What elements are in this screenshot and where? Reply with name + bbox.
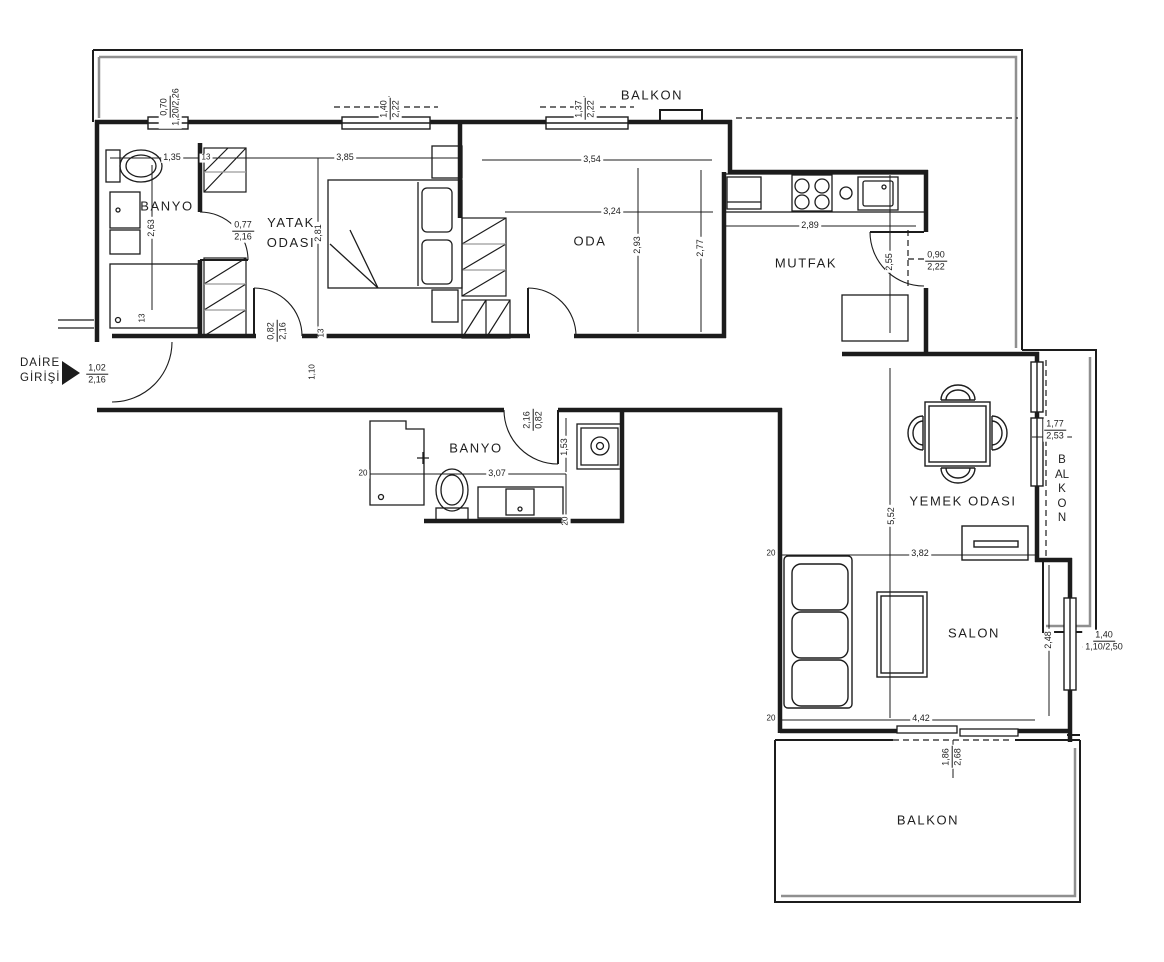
dim-oda-height-1: 2,93 bbox=[633, 234, 643, 256]
yemek-furniture bbox=[908, 385, 1028, 560]
yemek-balkon-door-dim: 1,77 2,53 bbox=[1043, 419, 1067, 442]
room-label-banyo-1: BANYO bbox=[140, 199, 194, 214]
dim-wall-20-a: 20 bbox=[357, 470, 370, 479]
kitchen-sink bbox=[858, 177, 898, 210]
dim-banyo2-width: 3,07 bbox=[486, 469, 508, 479]
dim-mutfak-width: 2,89 bbox=[799, 221, 821, 231]
salon-window-dim: 1,40 1,10/2,50 bbox=[1082, 630, 1126, 653]
dim-value: 2,16 bbox=[232, 232, 254, 243]
dim-salon-height: 2,48 bbox=[1044, 629, 1054, 651]
room-label-balkon-bottom: BALKON bbox=[897, 813, 959, 828]
floor-plan: BALKON BANYO YATAK ODASI ODA MUTFAK BANY… bbox=[0, 0, 1164, 962]
banyo1-window-dim: 0,70 1,20/2,26 bbox=[159, 85, 182, 129]
bed bbox=[328, 180, 462, 288]
vanity bbox=[478, 487, 563, 518]
yatak-window-dim: 1,40 2,22 bbox=[379, 97, 402, 121]
room-label-salon: SALON bbox=[948, 626, 1000, 641]
dim-yatak-width: 3,85 bbox=[334, 153, 356, 163]
dim-wall-20-d: 20 bbox=[765, 715, 778, 724]
chair-right bbox=[992, 416, 1007, 450]
toilet-2 bbox=[436, 469, 468, 522]
room-label-balkon-right: BALKON bbox=[1055, 453, 1070, 526]
shower bbox=[577, 424, 622, 469]
dim-wall-20-c: 20 bbox=[765, 550, 778, 559]
sofa bbox=[784, 556, 852, 708]
dim-value: 0,70 bbox=[159, 96, 171, 118]
dim-wall-13-left: 13 bbox=[139, 312, 148, 325]
dim-wall-13-mid: 13 bbox=[318, 327, 327, 340]
dim-banyo1-height: 2,63 bbox=[147, 217, 157, 239]
dining-table bbox=[925, 402, 990, 466]
yemek-balkon-window-2 bbox=[1031, 418, 1043, 486]
dim-value: 2,22 bbox=[586, 98, 597, 120]
nightstand-top bbox=[432, 146, 462, 178]
room-label-mutfak: MUTFAK bbox=[775, 256, 837, 271]
dim-wall-20-b: 20 bbox=[562, 515, 571, 528]
dim-banyo2-height: 1,53 bbox=[560, 436, 570, 458]
dim-oda-top-width: 3,54 bbox=[581, 155, 603, 165]
dim-value: 1,20/2,26 bbox=[171, 86, 182, 128]
dim-yemek-width: 3,82 bbox=[909, 549, 931, 559]
chair-top bbox=[941, 385, 975, 400]
room-label-balkon-top: BALKON bbox=[621, 88, 683, 103]
dim-salon-width: 4,42 bbox=[910, 714, 932, 724]
entrance-door bbox=[112, 342, 172, 402]
dim-yatak-height: 2,81 bbox=[314, 222, 324, 244]
fridge bbox=[727, 177, 761, 209]
dim-value: 0,77 bbox=[232, 220, 254, 232]
dim-value: 1,10/2,50 bbox=[1083, 642, 1125, 653]
dim-value: 2,68 bbox=[953, 746, 964, 768]
yatak-door-dim: 0,77 2,16 bbox=[231, 220, 255, 243]
dim-banyo1-width: 1,35 bbox=[161, 153, 183, 163]
chair-bottom bbox=[941, 468, 975, 483]
dim-value: 0,82 bbox=[534, 409, 545, 431]
sink bbox=[110, 192, 140, 254]
closet bbox=[370, 421, 429, 505]
dim-value: 0,90 bbox=[925, 250, 947, 262]
dim-oda-height-2: 2,77 bbox=[696, 237, 706, 259]
oda-door bbox=[528, 288, 576, 336]
dim-mutfak-height: 2,55 bbox=[885, 251, 895, 273]
salon-window bbox=[1064, 598, 1076, 690]
wardrobe-oda-2 bbox=[462, 300, 510, 338]
stove bbox=[792, 175, 832, 211]
entrance-door-dim: 1,02 2,16 bbox=[85, 363, 109, 386]
salon-sliding-door bbox=[897, 726, 1018, 736]
dim-value: 2,22 bbox=[925, 262, 947, 273]
dim-value: 2,16 bbox=[278, 320, 289, 342]
floorplan-drawing bbox=[0, 0, 1164, 962]
yatak-furniture bbox=[328, 146, 462, 322]
kitchen-cabinet bbox=[842, 295, 908, 341]
dim-value: 2,16 bbox=[86, 375, 108, 386]
dim-value: 1,37 bbox=[574, 98, 586, 120]
wardrobes bbox=[204, 148, 510, 338]
dim-value: 2,22 bbox=[391, 98, 402, 120]
wardrobe-hall-bottom bbox=[204, 258, 246, 336]
coffee-table bbox=[877, 592, 927, 677]
burner bbox=[840, 187, 852, 199]
dim-value: 1,40 bbox=[1093, 630, 1115, 642]
dim-value: 1,02 bbox=[86, 363, 108, 375]
toilet bbox=[106, 150, 162, 182]
mutfak-door bbox=[870, 232, 924, 286]
mutfak-door-dim: 0,90 2,22 bbox=[924, 250, 948, 273]
banyo2-door-dim: 2,16 0,82 bbox=[522, 408, 545, 432]
balcony-parapet bbox=[58, 50, 1096, 902]
dim-yemek-salon-height: 5,52 bbox=[887, 505, 897, 527]
entrance-arrow-icon bbox=[58, 359, 84, 389]
chair-left bbox=[908, 416, 923, 450]
room-label-banyo-2: BANYO bbox=[449, 441, 503, 456]
wardrobe-oda bbox=[462, 218, 506, 296]
dim-hall-width: 1,10 bbox=[309, 362, 318, 382]
salon-balkon-door-dim: 1,86 2,68 bbox=[941, 745, 964, 769]
dim-value: 2,53 bbox=[1044, 431, 1066, 442]
yatak-hall-door-dim: 0,82 2,16 bbox=[266, 319, 289, 343]
dim-value: 0,82 bbox=[266, 320, 278, 342]
walls bbox=[95, 110, 1080, 742]
yemek-balkon-window-1 bbox=[1031, 362, 1043, 412]
dim-oda-width: 3,24 bbox=[601, 207, 623, 217]
dim-value: 2,16 bbox=[522, 409, 534, 431]
windows bbox=[148, 117, 1076, 690]
nightstand-bottom bbox=[432, 290, 458, 322]
room-label-yemek-odasi: YEMEK ODASI bbox=[909, 494, 1016, 509]
dim-value: 1,77 bbox=[1044, 419, 1066, 431]
dim-value: 1,86 bbox=[941, 746, 953, 768]
room-label-oda: ODA bbox=[574, 234, 607, 249]
dim-value: 1,40 bbox=[379, 98, 391, 120]
dashed-lines bbox=[334, 107, 1046, 740]
salon-furniture bbox=[784, 556, 927, 708]
bathtub bbox=[110, 264, 198, 328]
oda-window-dim: 1,37 2,22 bbox=[574, 97, 597, 121]
dim-wall-13: 13 bbox=[200, 154, 213, 163]
